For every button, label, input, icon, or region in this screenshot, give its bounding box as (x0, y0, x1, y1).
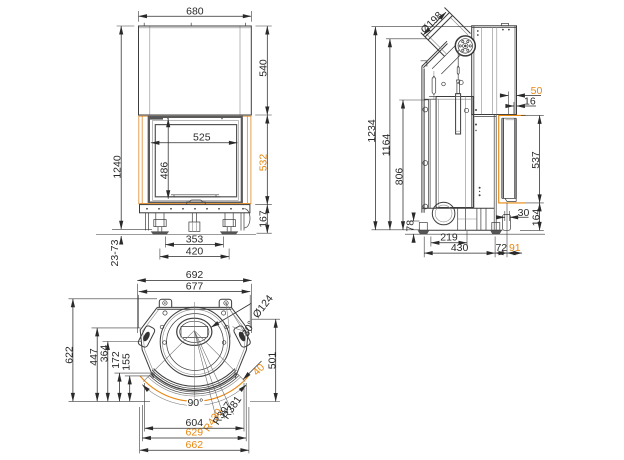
svg-text:364: 364 (99, 345, 111, 363)
svg-text:1164: 1164 (380, 134, 392, 157)
svg-text:806: 806 (394, 168, 406, 186)
svg-text:537: 537 (530, 151, 542, 169)
svg-text:167: 167 (258, 210, 270, 228)
svg-text:501: 501 (266, 352, 278, 370)
svg-text:1240: 1240 (112, 155, 124, 179)
svg-text:91: 91 (509, 242, 521, 254)
svg-text:164: 164 (530, 209, 542, 227)
svg-text:Ø124: Ø124 (251, 293, 276, 321)
svg-text:Ø198: Ø198 (419, 9, 446, 36)
svg-text:692: 692 (186, 269, 204, 281)
svg-text:78: 78 (404, 220, 416, 232)
svg-text:90°: 90° (187, 397, 203, 409)
svg-text:72: 72 (495, 242, 507, 254)
svg-text:R381: R381 (220, 394, 244, 422)
svg-text:23-73: 23-73 (109, 239, 121, 266)
svg-text:420: 420 (186, 245, 204, 257)
svg-text:677: 677 (186, 280, 204, 292)
svg-text:155: 155 (120, 353, 132, 371)
svg-text:430: 430 (451, 242, 469, 254)
svg-text:662: 662 (186, 439, 204, 451)
svg-text:680: 680 (186, 5, 204, 17)
svg-text:525: 525 (193, 132, 211, 144)
svg-text:30: 30 (518, 207, 530, 219)
svg-text:1234: 1234 (366, 119, 378, 143)
svg-text:486: 486 (159, 162, 171, 180)
svg-text:353: 353 (186, 233, 204, 245)
svg-text:629: 629 (186, 427, 204, 439)
svg-text:540: 540 (258, 59, 270, 77)
svg-text:532: 532 (258, 154, 270, 172)
svg-text:16: 16 (524, 95, 536, 107)
svg-text:622: 622 (64, 346, 76, 364)
svg-text:40: 40 (250, 361, 267, 378)
